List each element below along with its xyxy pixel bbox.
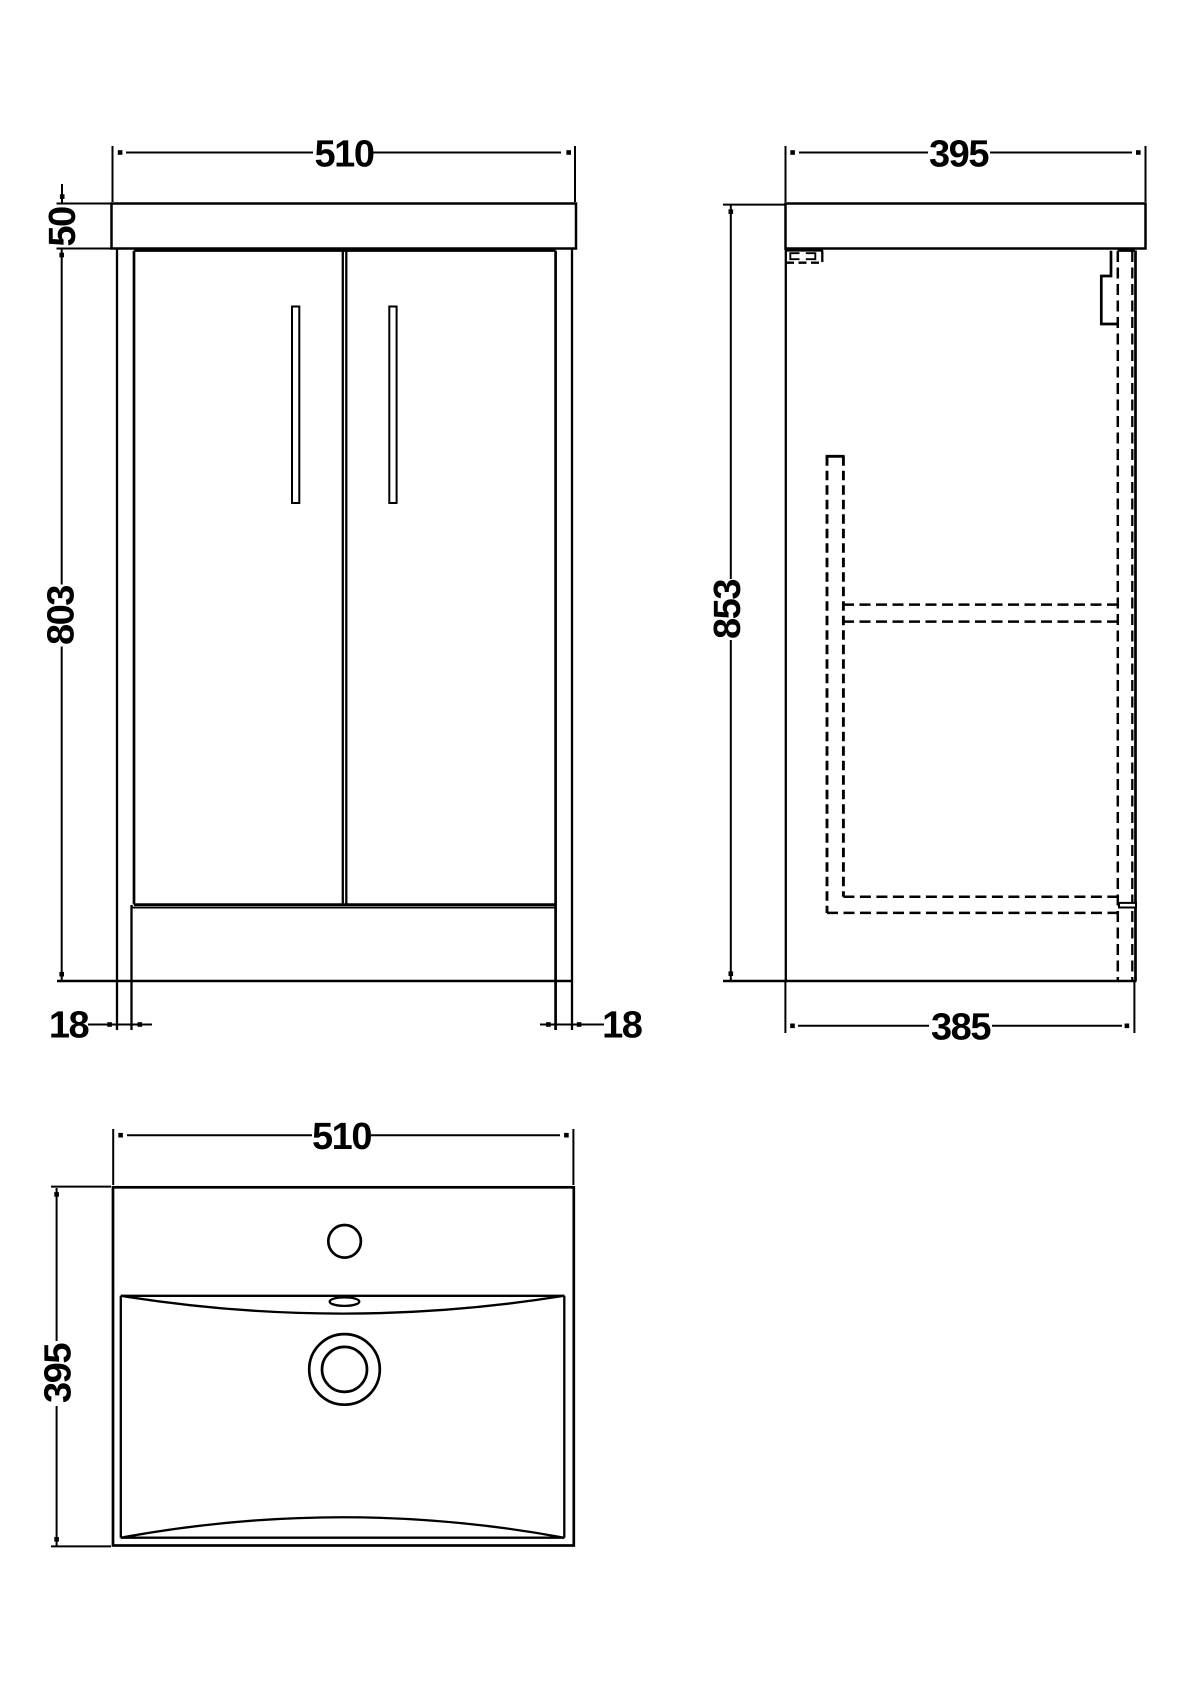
svg-text:395: 395 xyxy=(38,1343,80,1403)
svg-text:510: 510 xyxy=(315,134,374,176)
svg-text:510: 510 xyxy=(312,1116,371,1158)
svg-text:853: 853 xyxy=(707,580,749,639)
svg-text:385: 385 xyxy=(931,1007,991,1049)
svg-text:18: 18 xyxy=(602,1005,642,1047)
svg-text:803: 803 xyxy=(40,586,82,645)
svg-text:50: 50 xyxy=(42,207,84,247)
svg-text:395: 395 xyxy=(929,134,989,176)
svg-text:18: 18 xyxy=(49,1005,89,1047)
